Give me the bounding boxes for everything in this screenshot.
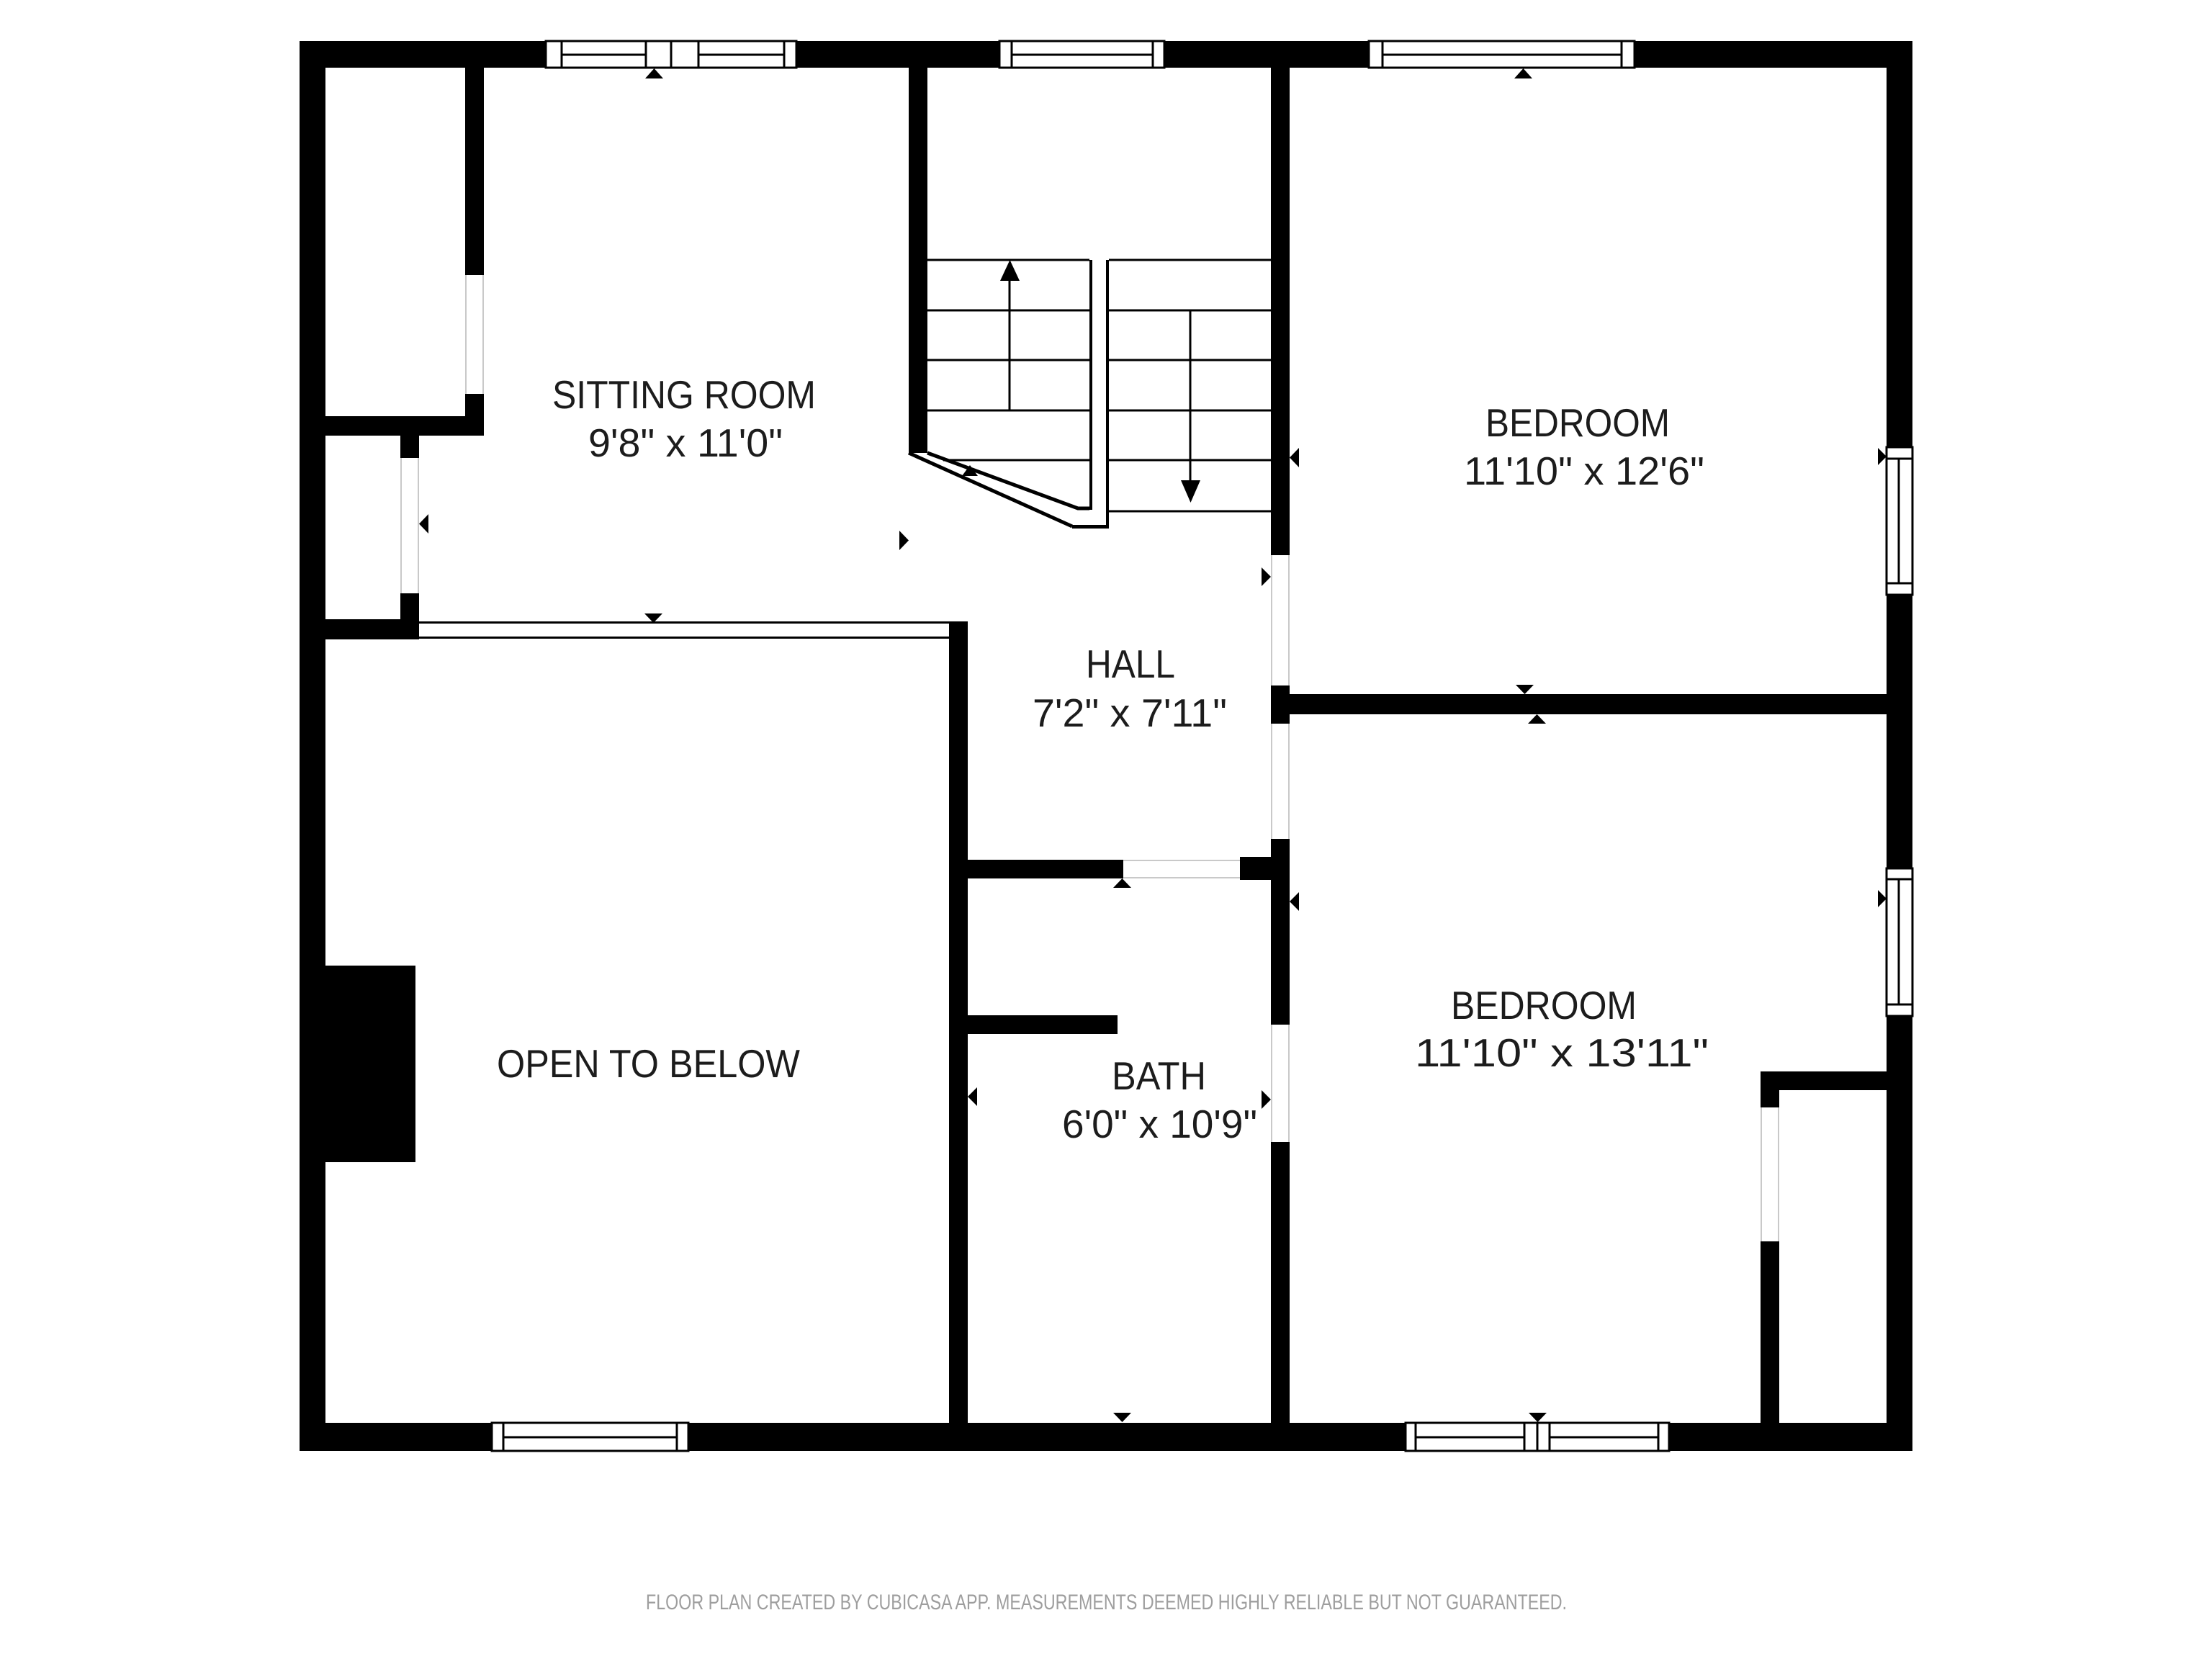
svg-text:7'2" x 7'11": 7'2" x 7'11" xyxy=(1033,691,1227,735)
svg-text:HALL: HALL xyxy=(1086,642,1175,686)
svg-text:BEDROOM: BEDROOM xyxy=(1485,400,1670,445)
svg-text:OPEN TO BELOW: OPEN TO BELOW xyxy=(497,1041,800,1086)
svg-text:11'10" x 12'6": 11'10" x 12'6" xyxy=(1464,449,1704,493)
svg-text:FLOOR PLAN CREATED BY CUBICASA: FLOOR PLAN CREATED BY CUBICASA APP. MEAS… xyxy=(646,1591,1567,1614)
svg-text:BEDROOM: BEDROOM xyxy=(1451,983,1637,1028)
svg-text:9'8" x 11'0": 9'8" x 11'0" xyxy=(588,421,783,465)
svg-text:6'0" x 10'9": 6'0" x 10'9" xyxy=(1062,1102,1257,1146)
svg-text:SITTING ROOM: SITTING ROOM xyxy=(552,372,816,417)
svg-text:BATH: BATH xyxy=(1112,1053,1206,1098)
svg-text:11'10" x 13'11": 11'10" x 13'11" xyxy=(1415,1030,1709,1075)
